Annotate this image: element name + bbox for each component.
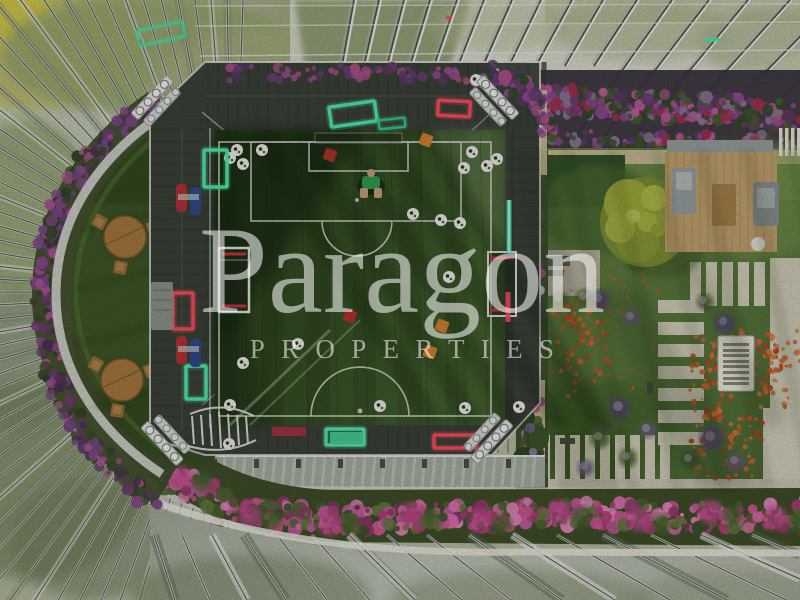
svg-text:PROPERTIES: PROPERTIES — [250, 334, 570, 364]
svg-text:Paragon: Paragon — [199, 202, 605, 339]
